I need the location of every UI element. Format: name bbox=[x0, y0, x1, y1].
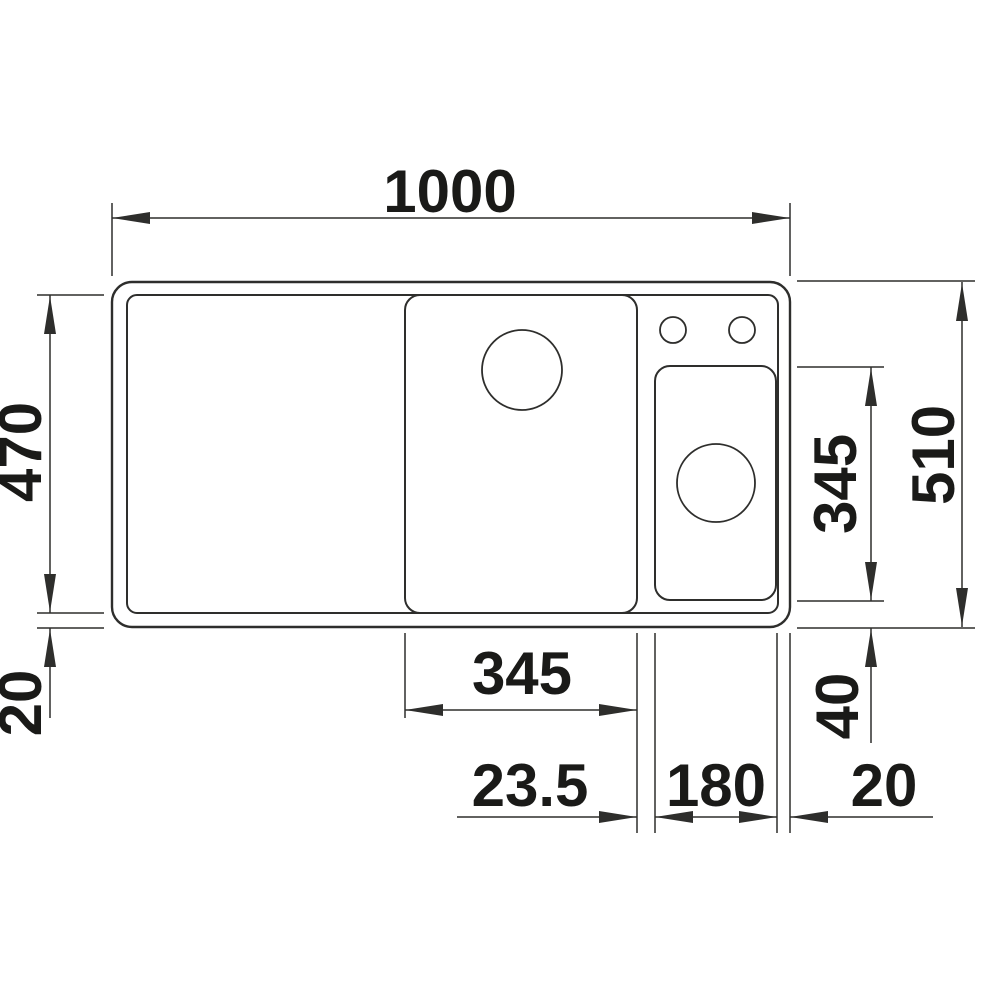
sink-outline bbox=[112, 282, 790, 627]
arrowhead-right bbox=[599, 704, 637, 716]
dim-label-main-bowl-width: 345 bbox=[472, 640, 572, 707]
dim-label-overall-width: 1000 bbox=[383, 158, 516, 225]
tap-hole-right bbox=[729, 317, 755, 343]
dim-label-rim-bottom-left: 20 bbox=[0, 670, 54, 737]
arrowhead-up bbox=[44, 629, 56, 667]
arrowhead-down bbox=[44, 574, 56, 612]
arrowhead-up bbox=[956, 283, 968, 321]
dimension-rim-bottom-right: 40 bbox=[797, 628, 975, 743]
main-bowl bbox=[405, 295, 637, 613]
small-bowl-drain-hole bbox=[677, 444, 755, 522]
dimension-rim-bottom-left: 20 bbox=[0, 628, 104, 736]
arrowhead-down bbox=[956, 588, 968, 626]
arrowhead-up bbox=[865, 629, 877, 667]
arrowhead-right bbox=[752, 212, 790, 224]
arrowhead-up bbox=[865, 368, 877, 406]
dim-label-rim-right: 20 bbox=[851, 752, 918, 819]
small-bowl bbox=[655, 366, 776, 600]
dim-label-partition-width: 23.5 bbox=[472, 752, 589, 819]
dim-label-small-bowl-width: 180 bbox=[666, 752, 766, 819]
arrowhead-left bbox=[405, 704, 443, 716]
dimension-bowl-area-depth: 470 bbox=[0, 295, 104, 613]
dim-label-overall-depth: 510 bbox=[900, 405, 967, 505]
dim-label-bowl-area-depth: 470 bbox=[0, 402, 54, 502]
arrowhead-left bbox=[790, 811, 828, 823]
dim-label-small-bowl-depth: 345 bbox=[802, 434, 869, 534]
arrowhead-right bbox=[599, 811, 637, 823]
dim-label-rim-bottom-right: 40 bbox=[804, 673, 871, 740]
arrowhead-left bbox=[112, 212, 150, 224]
main-bowl-drain-hole bbox=[482, 330, 562, 410]
dimension-overall-width: 1000 bbox=[112, 158, 790, 276]
dimension-partition-width: 23.5 bbox=[457, 752, 637, 823]
dimension-small-bowl-depth: 345 bbox=[797, 367, 884, 601]
arrowhead-down bbox=[865, 562, 877, 600]
sink-technical-drawing: 1000 470 20 345 23.5 180 bbox=[0, 0, 1000, 1000]
tap-hole-left bbox=[660, 317, 686, 343]
drawing-canvas: 1000 470 20 345 23.5 180 bbox=[0, 0, 1000, 1000]
dimension-small-bowl-width: 180 bbox=[655, 633, 777, 833]
arrowhead-up bbox=[44, 296, 56, 334]
sink-inner-rim bbox=[127, 295, 778, 613]
